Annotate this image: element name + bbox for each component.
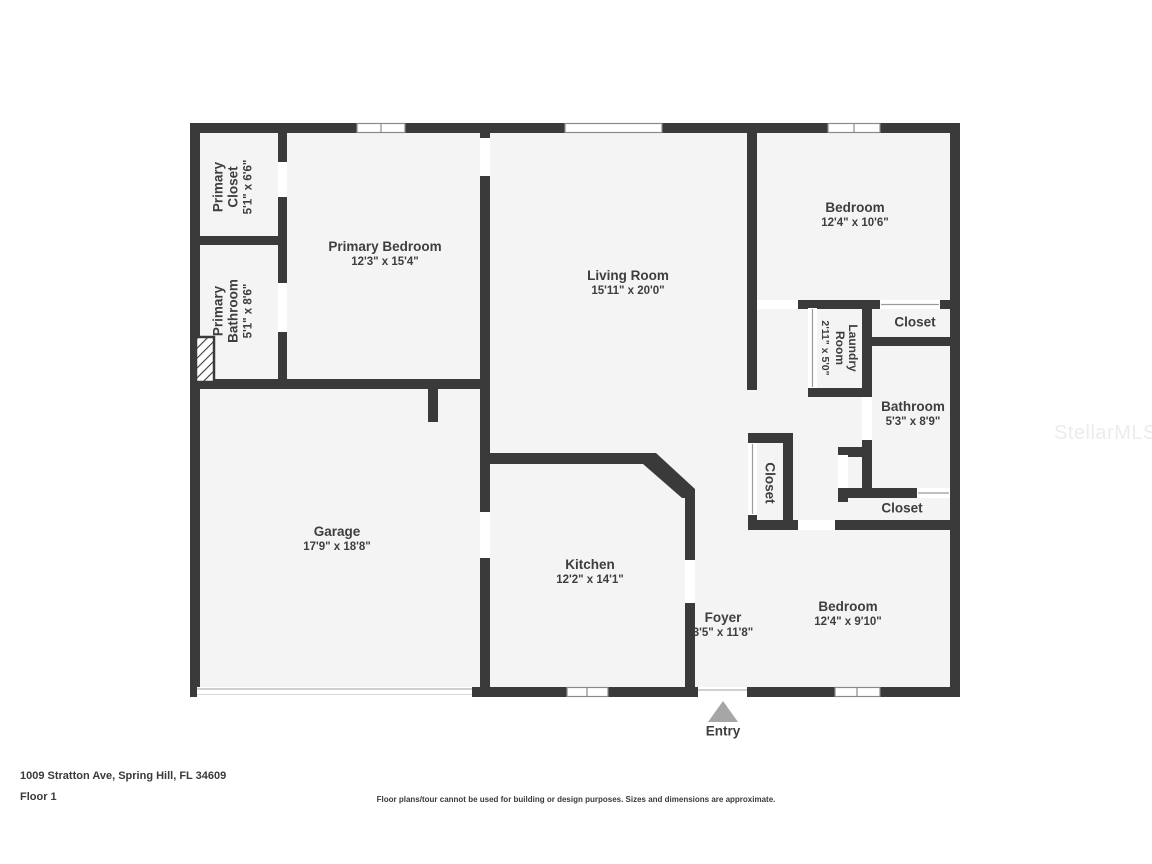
room-label-closet-bottom-right: Closet (881, 500, 922, 515)
room-label-garage: Garage 17'9" x 18'8" (303, 524, 371, 556)
room-name: Primary Closet (211, 155, 241, 219)
room-name: Garage (303, 524, 371, 539)
room-dims: 5'1" x 6'6" (241, 155, 258, 219)
room-label-bedroom-top: Bedroom 12'4" x 10'6" (821, 200, 889, 232)
room-label-foyer: Foyer 3'5" x 11'8" (693, 610, 754, 642)
room-dims: 12'2" x 14'1" (556, 572, 624, 589)
room-name: Bedroom (814, 599, 882, 614)
watermark: StellarMLS (1054, 422, 1152, 445)
room-label-closet-top-right: Closet (894, 314, 935, 329)
room-dims: 12'4" x 10'6" (821, 215, 889, 232)
floor-plan-graphic (0, 0, 1152, 864)
property-address: 1009 Stratton Ave, Spring Hill, FL 34609 (20, 770, 226, 782)
room-dims: 3'5" x 11'8" (693, 625, 754, 642)
room-label-primary-bathroom: Primary Bathroom 5'1" x 8'6" (211, 276, 258, 346)
entry-arrow-icon (708, 701, 738, 722)
room-dims: 12'3" x 15'4" (328, 254, 441, 271)
room-name: Primary Bedroom (328, 239, 441, 254)
room-name: Closet (894, 314, 935, 329)
room-dims: 15'11" x 20'0" (587, 283, 669, 300)
floor-plan-page: Primary Closet 5'1" x 6'6" Primary Bathr… (0, 0, 1152, 864)
room-label-laundry-room: Laundry Room 2'11" x 5'0" (817, 319, 859, 377)
entry-label: Entry (706, 724, 741, 739)
room-label-primary-closet: Primary Closet 5'1" x 6'6" (211, 155, 258, 219)
entry-opening (698, 687, 747, 697)
room-label-living-room: Living Room 15'11" x 20'0" (587, 268, 669, 300)
room-label-primary-bedroom: Primary Bedroom 12'3" x 15'4" (328, 239, 441, 271)
room-label-closet-hall: Closet (762, 462, 777, 503)
room-name: Kitchen (556, 557, 624, 572)
room-name: Closet (881, 500, 922, 515)
room-dims: 12'4" x 9'10" (814, 614, 882, 631)
room-label-bathroom: Bathroom 5'3" x 8'9" (881, 399, 945, 431)
room-label-bedroom-bottom: Bedroom 12'4" x 9'10" (814, 599, 882, 631)
room-name: Living Room (587, 268, 669, 283)
garage-door (197, 687, 472, 697)
disclaimer-text: Floor plans/tour cannot be used for buil… (377, 795, 776, 804)
room-name: Primary Bathroom (211, 276, 241, 346)
room-dims: 5'3" x 8'9" (881, 414, 945, 431)
room-dims: 2'11" x 5'0" (817, 319, 832, 377)
room-name: Bathroom (881, 399, 945, 414)
room-name: Closet (762, 462, 777, 503)
room-label-kitchen: Kitchen 12'2" x 14'1" (556, 557, 624, 589)
floor-label: Floor 1 (20, 791, 57, 803)
room-dims: 5'1" x 8'6" (241, 276, 258, 346)
room-dims: 17'9" x 18'8" (303, 539, 371, 556)
room-name: Foyer (693, 610, 754, 625)
room-name: Laundry Room (832, 319, 859, 377)
room-name: Bedroom (821, 200, 889, 215)
